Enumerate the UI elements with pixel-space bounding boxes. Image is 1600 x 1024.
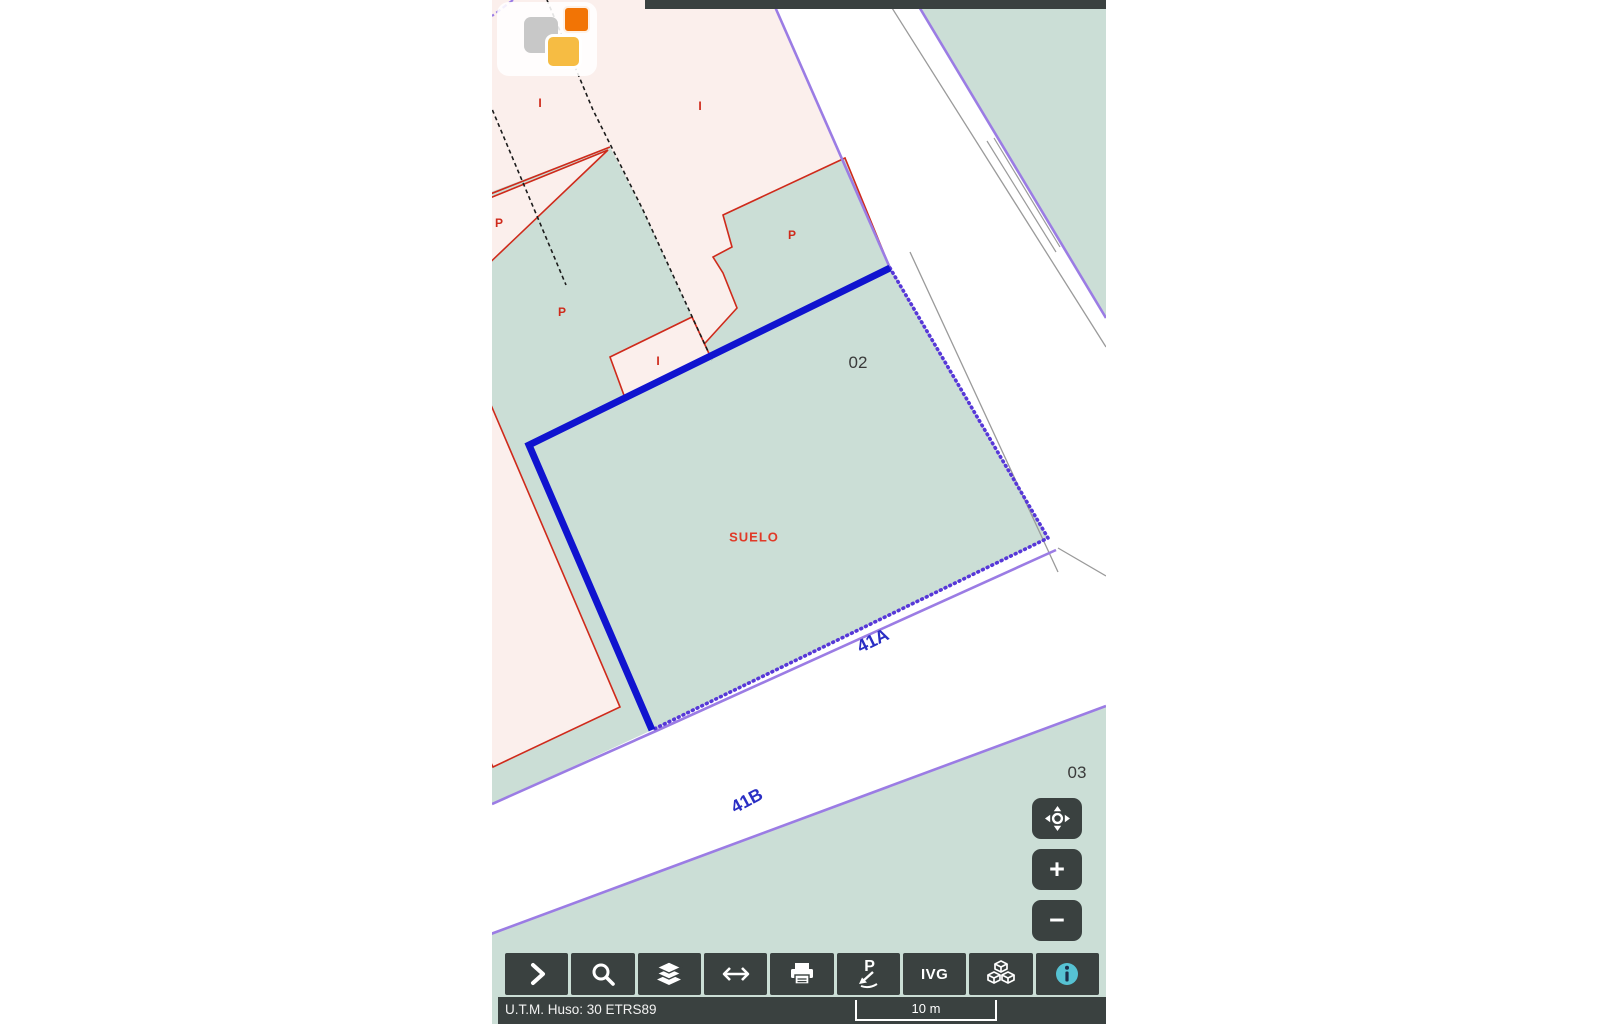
subparcel-letter-p: P [495, 216, 503, 230]
map-viewport[interactable]: I I P P P I 02 03 SUELO 41A 41B + − [492, 0, 1106, 1024]
parcel-number-02: 02 [849, 353, 868, 373]
subparcel-letter-i: I [656, 354, 659, 368]
utm-reference-text: U.T.M. Huso: 30 ETRS89 [505, 997, 657, 1024]
info-button[interactable] [1036, 953, 1099, 995]
zoom-in-button[interactable]: + [1032, 849, 1082, 890]
measure-button[interactable] [704, 953, 767, 995]
layers-button[interactable] [638, 953, 701, 995]
magnifier-icon [589, 960, 617, 988]
zoom-out-button[interactable]: − [1032, 900, 1082, 941]
layers-icon [654, 960, 684, 988]
logo-amber-square [545, 34, 582, 69]
cubes-icon [985, 960, 1017, 988]
expand-panel-button[interactable] [505, 953, 568, 995]
cartography-3d-button[interactable] [969, 953, 1032, 995]
chevron-right-icon [524, 961, 550, 987]
subparcel-letter-p: P [558, 305, 566, 319]
land-use-label-suelo: SUELO [729, 530, 779, 545]
cadastral-map-canvas [492, 0, 1106, 1024]
scale-label: 10 m [912, 1001, 941, 1016]
subparcel-letter-i: I [698, 99, 701, 113]
status-bar: U.T.M. Huso: 30 ETRS89 10 m [498, 997, 1106, 1024]
logo-orange-square [563, 6, 590, 33]
ivg-label: IVG [921, 966, 948, 983]
catastro-logo [497, 2, 597, 76]
point-reference-button[interactable]: P [837, 953, 900, 995]
subparcel-letter-p: P [788, 228, 796, 242]
double-arrow-icon [721, 963, 751, 985]
ivg-button[interactable]: IVG [903, 953, 966, 995]
map-scale-bar: 10 m [855, 1000, 997, 1021]
p-arrow-arrow [853, 959, 883, 989]
p-arrow-icon: P [853, 959, 883, 989]
bottom-toolbar: P IVG [505, 953, 1099, 995]
info-circle-icon [1054, 961, 1080, 987]
printer-icon [788, 961, 816, 987]
screen: { "map": { "labels": { "suelo": "SUELO",… [0, 0, 1600, 1024]
pan-button[interactable] [1032, 798, 1082, 839]
search-button[interactable] [571, 953, 634, 995]
subparcel-letter-i: I [538, 96, 541, 110]
top-bar-edge [645, 0, 1106, 9]
print-button[interactable] [770, 953, 833, 995]
parcel-number-03: 03 [1068, 763, 1087, 783]
pan-move-icon [1044, 805, 1071, 832]
